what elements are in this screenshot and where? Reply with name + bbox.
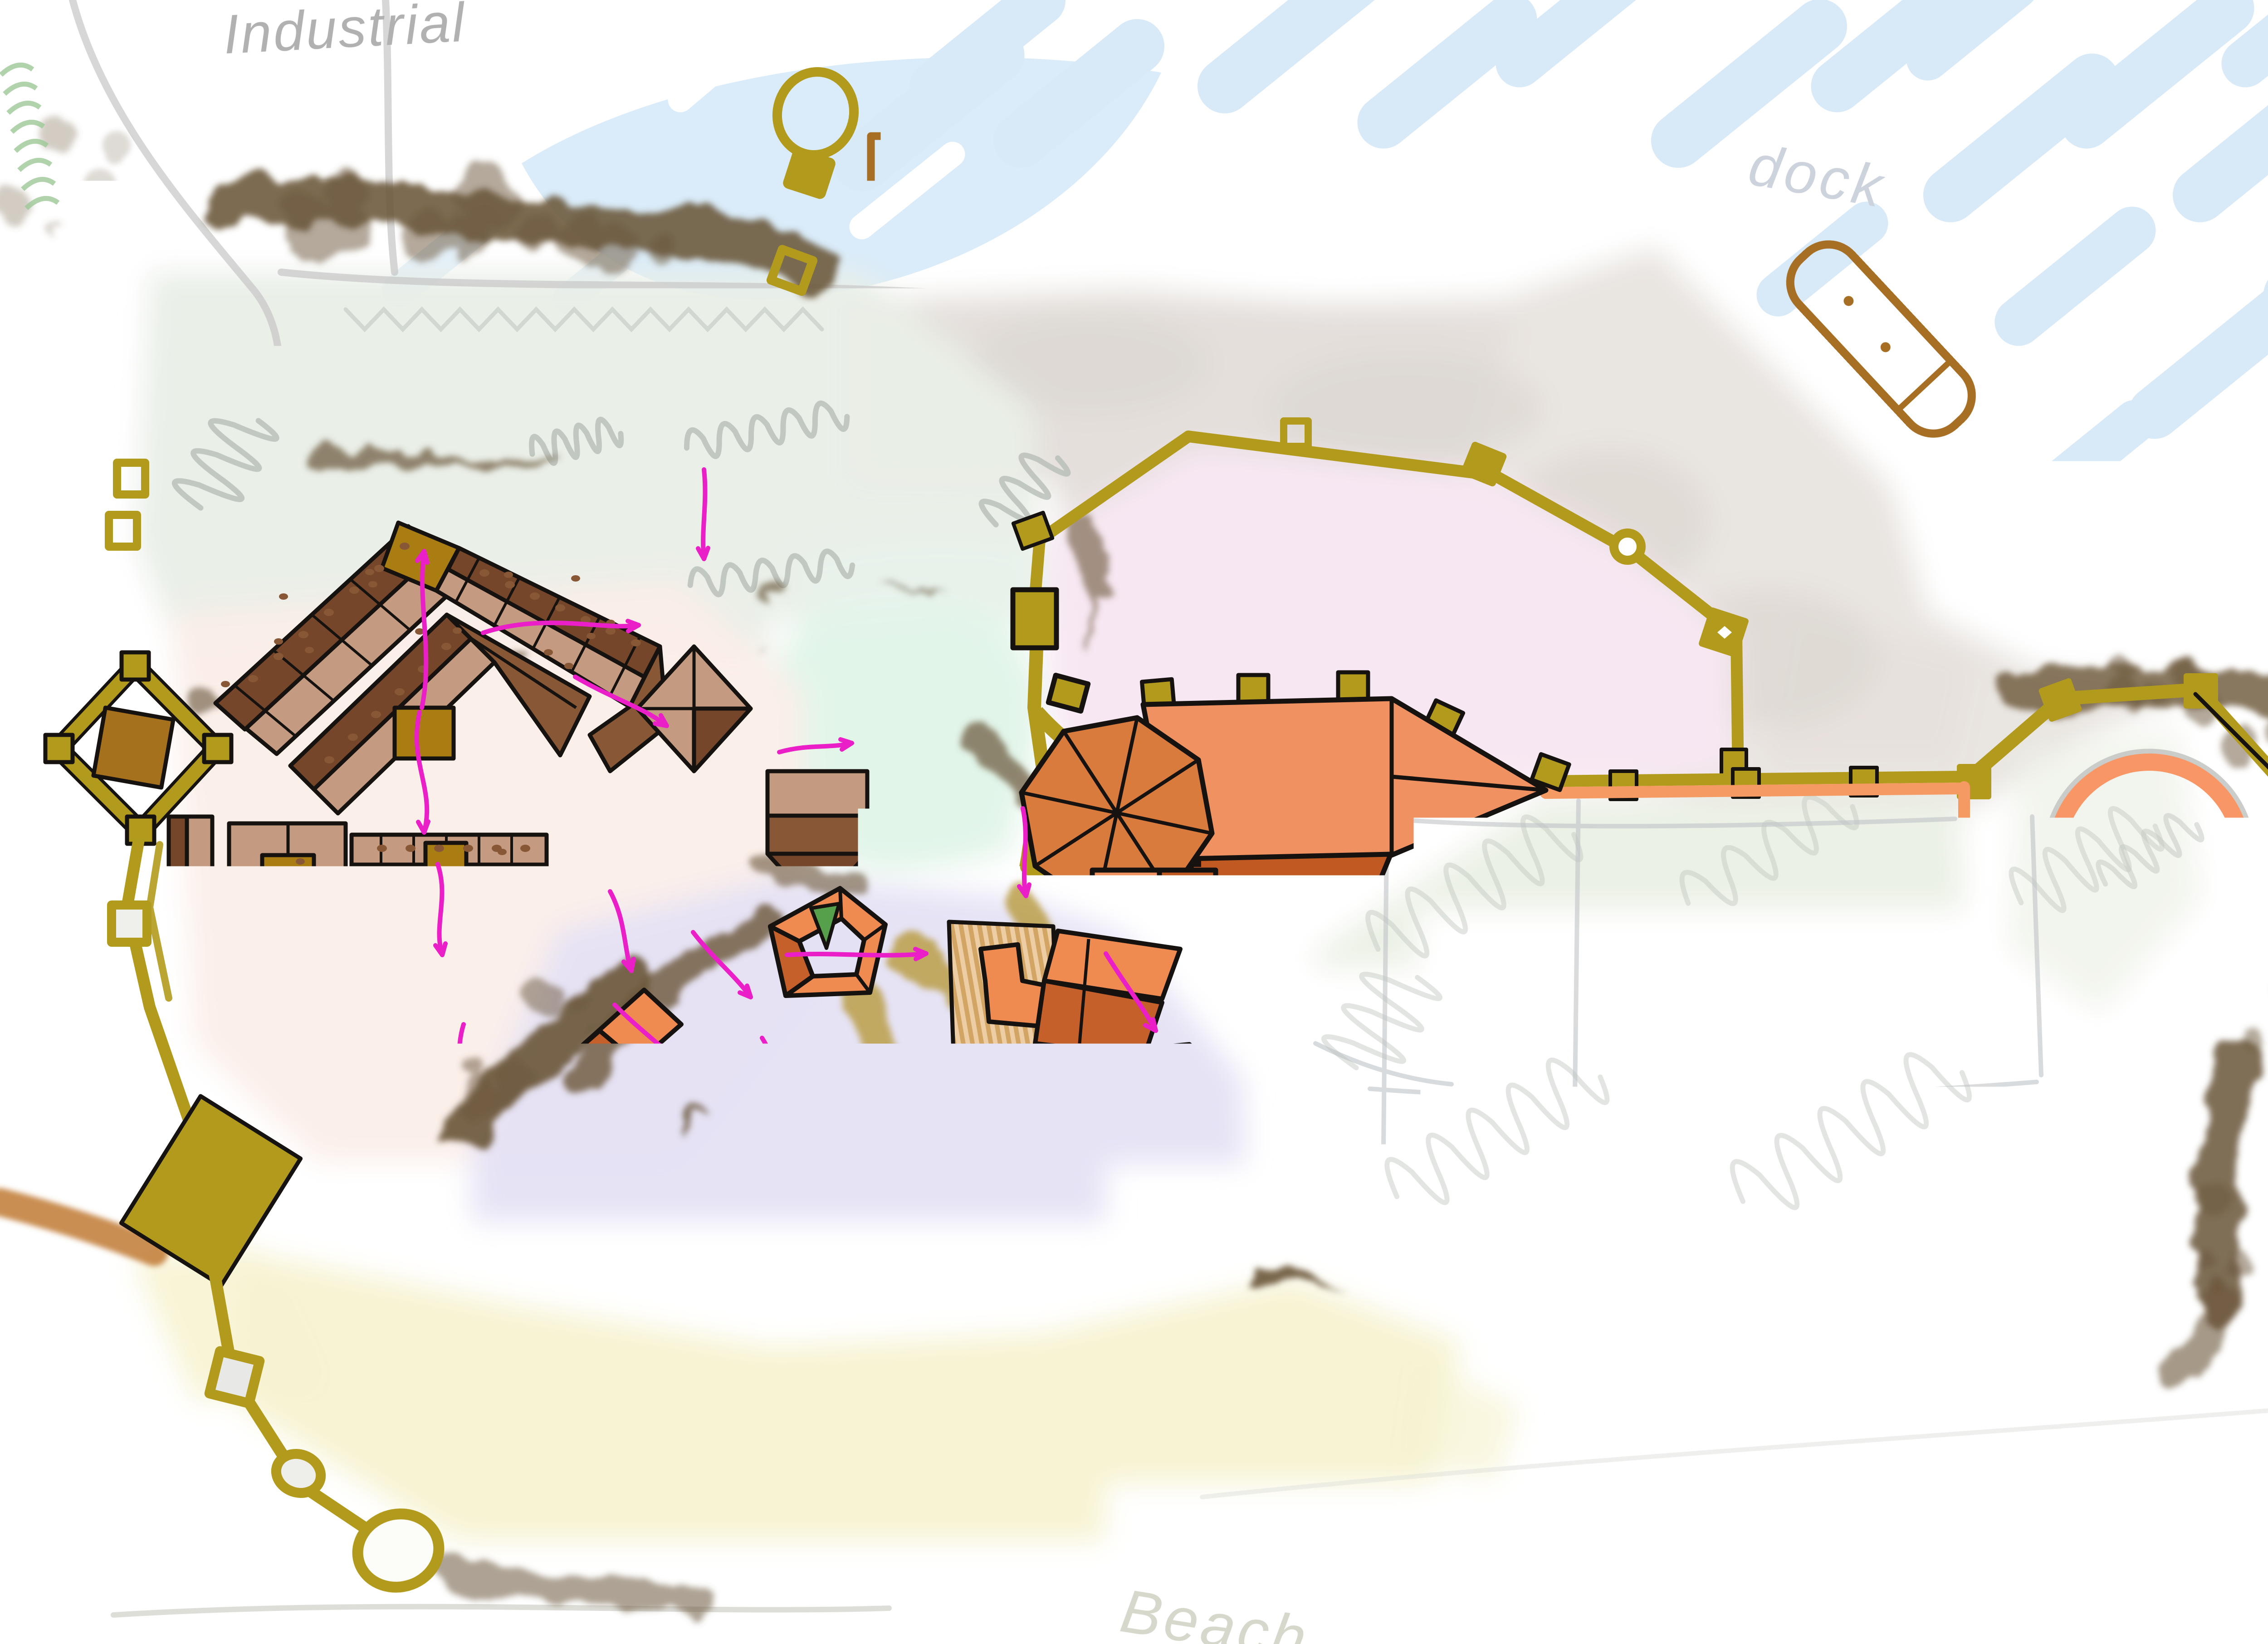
svg-text:Castle: Castle [1888,1404,2068,1478]
